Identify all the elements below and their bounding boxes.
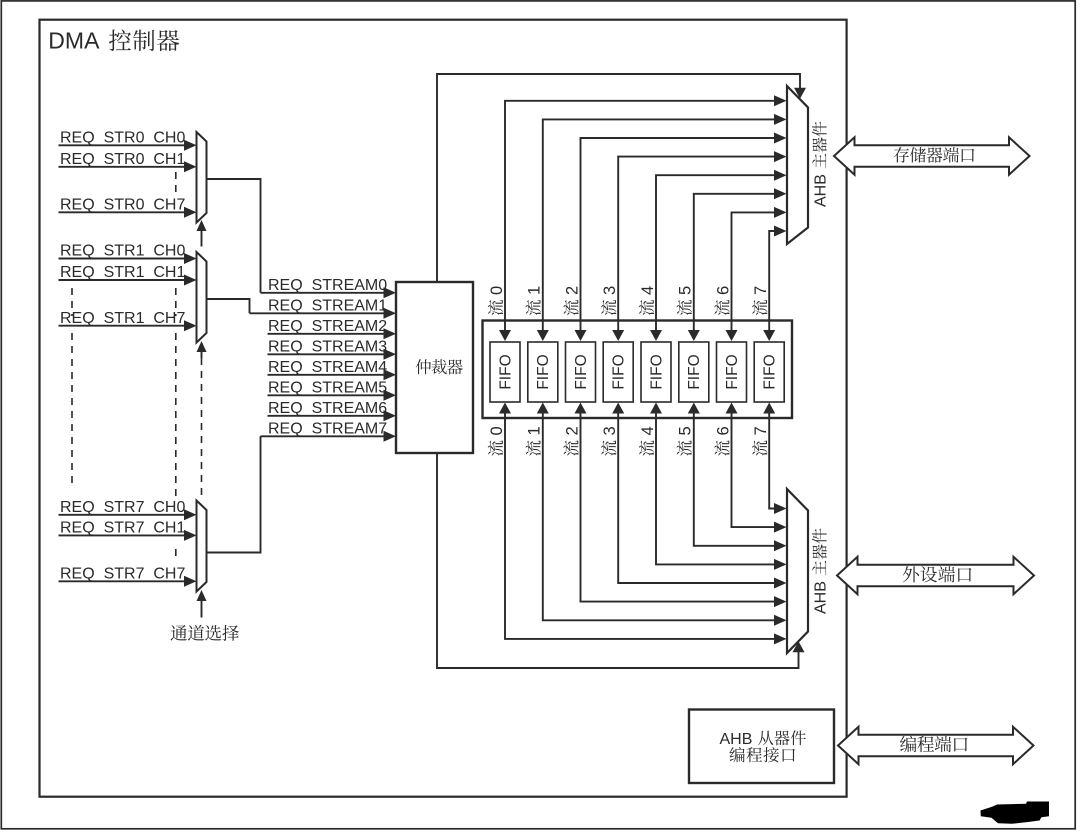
svg-text:REQ_STREAM7: REQ_STREAM7 [268, 421, 387, 438]
svg-text:AHB: AHB [813, 174, 830, 207]
svg-text:7: 7 [752, 426, 770, 435]
svg-text:REQ_STR0_CH1: REQ_STR0_CH1 [60, 151, 185, 168]
svg-text:7: 7 [752, 286, 770, 295]
svg-text:REQ_STREAM3: REQ_STREAM3 [268, 339, 387, 356]
svg-text:FIFO: FIFO [497, 354, 514, 389]
svg-text:0: 0 [488, 426, 506, 435]
svg-text:1: 1 [526, 286, 544, 295]
svg-text:REQ_STREAM4: REQ_STREAM4 [268, 359, 387, 376]
svg-text:6: 6 [714, 286, 732, 295]
svg-text:4: 4 [639, 286, 657, 295]
svg-text:REQ_STR7_CH7: REQ_STR7_CH7 [60, 566, 185, 583]
svg-text:REQ_STR1_CH7: REQ_STR1_CH7 [60, 310, 185, 327]
svg-text:FIFO: FIFO [724, 354, 741, 389]
svg-text:1: 1 [526, 426, 544, 435]
svg-text:REQ_STR7_CH0: REQ_STR7_CH0 [60, 499, 185, 516]
svg-text:REQ_STR1_CH0: REQ_STR1_CH0 [60, 243, 185, 260]
svg-text:FIFO: FIFO [686, 354, 703, 389]
svg-text:REQ_STR7_CH1: REQ_STR7_CH1 [60, 520, 185, 537]
svg-text:FIFO: FIFO [535, 354, 552, 389]
svg-text:REQ_STR1_CH1: REQ_STR1_CH1 [60, 264, 185, 281]
svg-text:5: 5 [677, 286, 695, 295]
svg-text:REQ_STREAM0: REQ_STREAM0 [268, 277, 387, 294]
svg-text:REQ_STREAM2: REQ_STREAM2 [268, 318, 387, 335]
svg-text:FIFO: FIFO [611, 354, 628, 389]
svg-text:REQ_STREAM1: REQ_STREAM1 [268, 298, 387, 315]
svg-text:0: 0 [488, 286, 506, 295]
svg-text:AHB: AHB [720, 731, 753, 748]
svg-text:4: 4 [639, 426, 657, 435]
svg-text:2: 2 [563, 426, 581, 435]
svg-text:5: 5 [677, 426, 695, 435]
svg-text:AHB: AHB [813, 581, 830, 614]
svg-text:DMA: DMA [48, 28, 100, 54]
svg-text:6: 6 [714, 426, 732, 435]
svg-text:REQ_STR0_CH0: REQ_STR0_CH0 [60, 130, 185, 147]
svg-text:REQ_STR0_CH7: REQ_STR0_CH7 [60, 197, 185, 214]
svg-text:3: 3 [601, 426, 619, 435]
svg-text:REQ_STREAM6: REQ_STREAM6 [268, 400, 387, 417]
svg-text:FIFO: FIFO [648, 354, 665, 389]
svg-text:3: 3 [601, 286, 619, 295]
svg-text:2: 2 [563, 286, 581, 295]
svg-text:REQ_STREAM5: REQ_STREAM5 [268, 380, 387, 397]
svg-text:FIFO: FIFO [762, 354, 779, 389]
svg-text:FIFO: FIFO [573, 354, 590, 389]
